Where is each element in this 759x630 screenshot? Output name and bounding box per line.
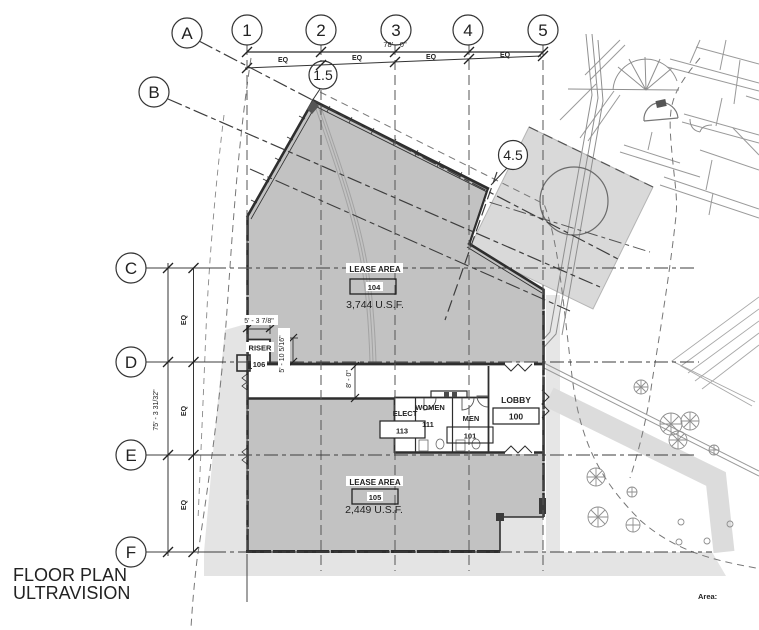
svg-text:5' - 10 5/16": 5' - 10 5/16" — [279, 335, 286, 373]
svg-text:8' - 0": 8' - 0" — [346, 370, 353, 388]
svg-text:EQ: EQ — [278, 57, 289, 64]
svg-text:3,744 U.S.F.: 3,744 U.S.F. — [346, 299, 404, 311]
svg-text:EQ: EQ — [500, 52, 511, 59]
svg-text:E: E — [125, 446, 136, 465]
svg-text:75' - 3 31/32": 75' - 3 31/32" — [153, 389, 160, 431]
svg-text:2,449 U.S.F.: 2,449 U.S.F. — [345, 504, 403, 516]
svg-text:Area:: Area: — [698, 592, 717, 601]
svg-text:78' - 0": 78' - 0" — [383, 40, 407, 49]
svg-text:5' - 3 7/8": 5' - 3 7/8" — [244, 318, 274, 325]
svg-text:MEN: MEN — [463, 414, 480, 423]
svg-text:105: 105 — [369, 493, 382, 502]
svg-text:EQ: EQ — [426, 54, 437, 61]
svg-text:106: 106 — [253, 360, 266, 369]
svg-text:3: 3 — [391, 21, 400, 40]
svg-text:F: F — [126, 543, 136, 562]
svg-text:WOMEN: WOMEN — [415, 403, 445, 412]
svg-text:100: 100 — [509, 412, 523, 422]
svg-text:LOBBY: LOBBY — [501, 395, 531, 405]
svg-text:FLOOR PLAN: FLOOR PLAN — [13, 565, 127, 585]
svg-text:C: C — [125, 259, 137, 278]
svg-text:101: 101 — [464, 432, 477, 441]
svg-text:LEASE AREA: LEASE AREA — [349, 265, 400, 274]
svg-text:EQ: EQ — [181, 405, 188, 416]
svg-text:1: 1 — [242, 21, 251, 40]
svg-text:ELECT: ELECT — [393, 409, 418, 418]
svg-text:ULTRAVISION: ULTRAVISION — [13, 583, 130, 603]
svg-text:104: 104 — [368, 283, 381, 292]
svg-text:4: 4 — [463, 21, 472, 40]
svg-text:4.5: 4.5 — [503, 147, 523, 163]
svg-text:113: 113 — [396, 427, 408, 436]
svg-text:5: 5 — [538, 21, 547, 40]
svg-text:111: 111 — [422, 420, 434, 429]
svg-text:D: D — [125, 353, 137, 372]
svg-text:EQ: EQ — [181, 314, 188, 325]
svg-text:2: 2 — [316, 21, 325, 40]
svg-text:B: B — [148, 83, 159, 102]
svg-text:A: A — [181, 24, 193, 43]
svg-text:RISER: RISER — [249, 344, 273, 353]
svg-text:EQ: EQ — [181, 499, 188, 510]
svg-text:LEASE AREA: LEASE AREA — [349, 478, 400, 487]
svg-text:EQ: EQ — [352, 55, 363, 62]
